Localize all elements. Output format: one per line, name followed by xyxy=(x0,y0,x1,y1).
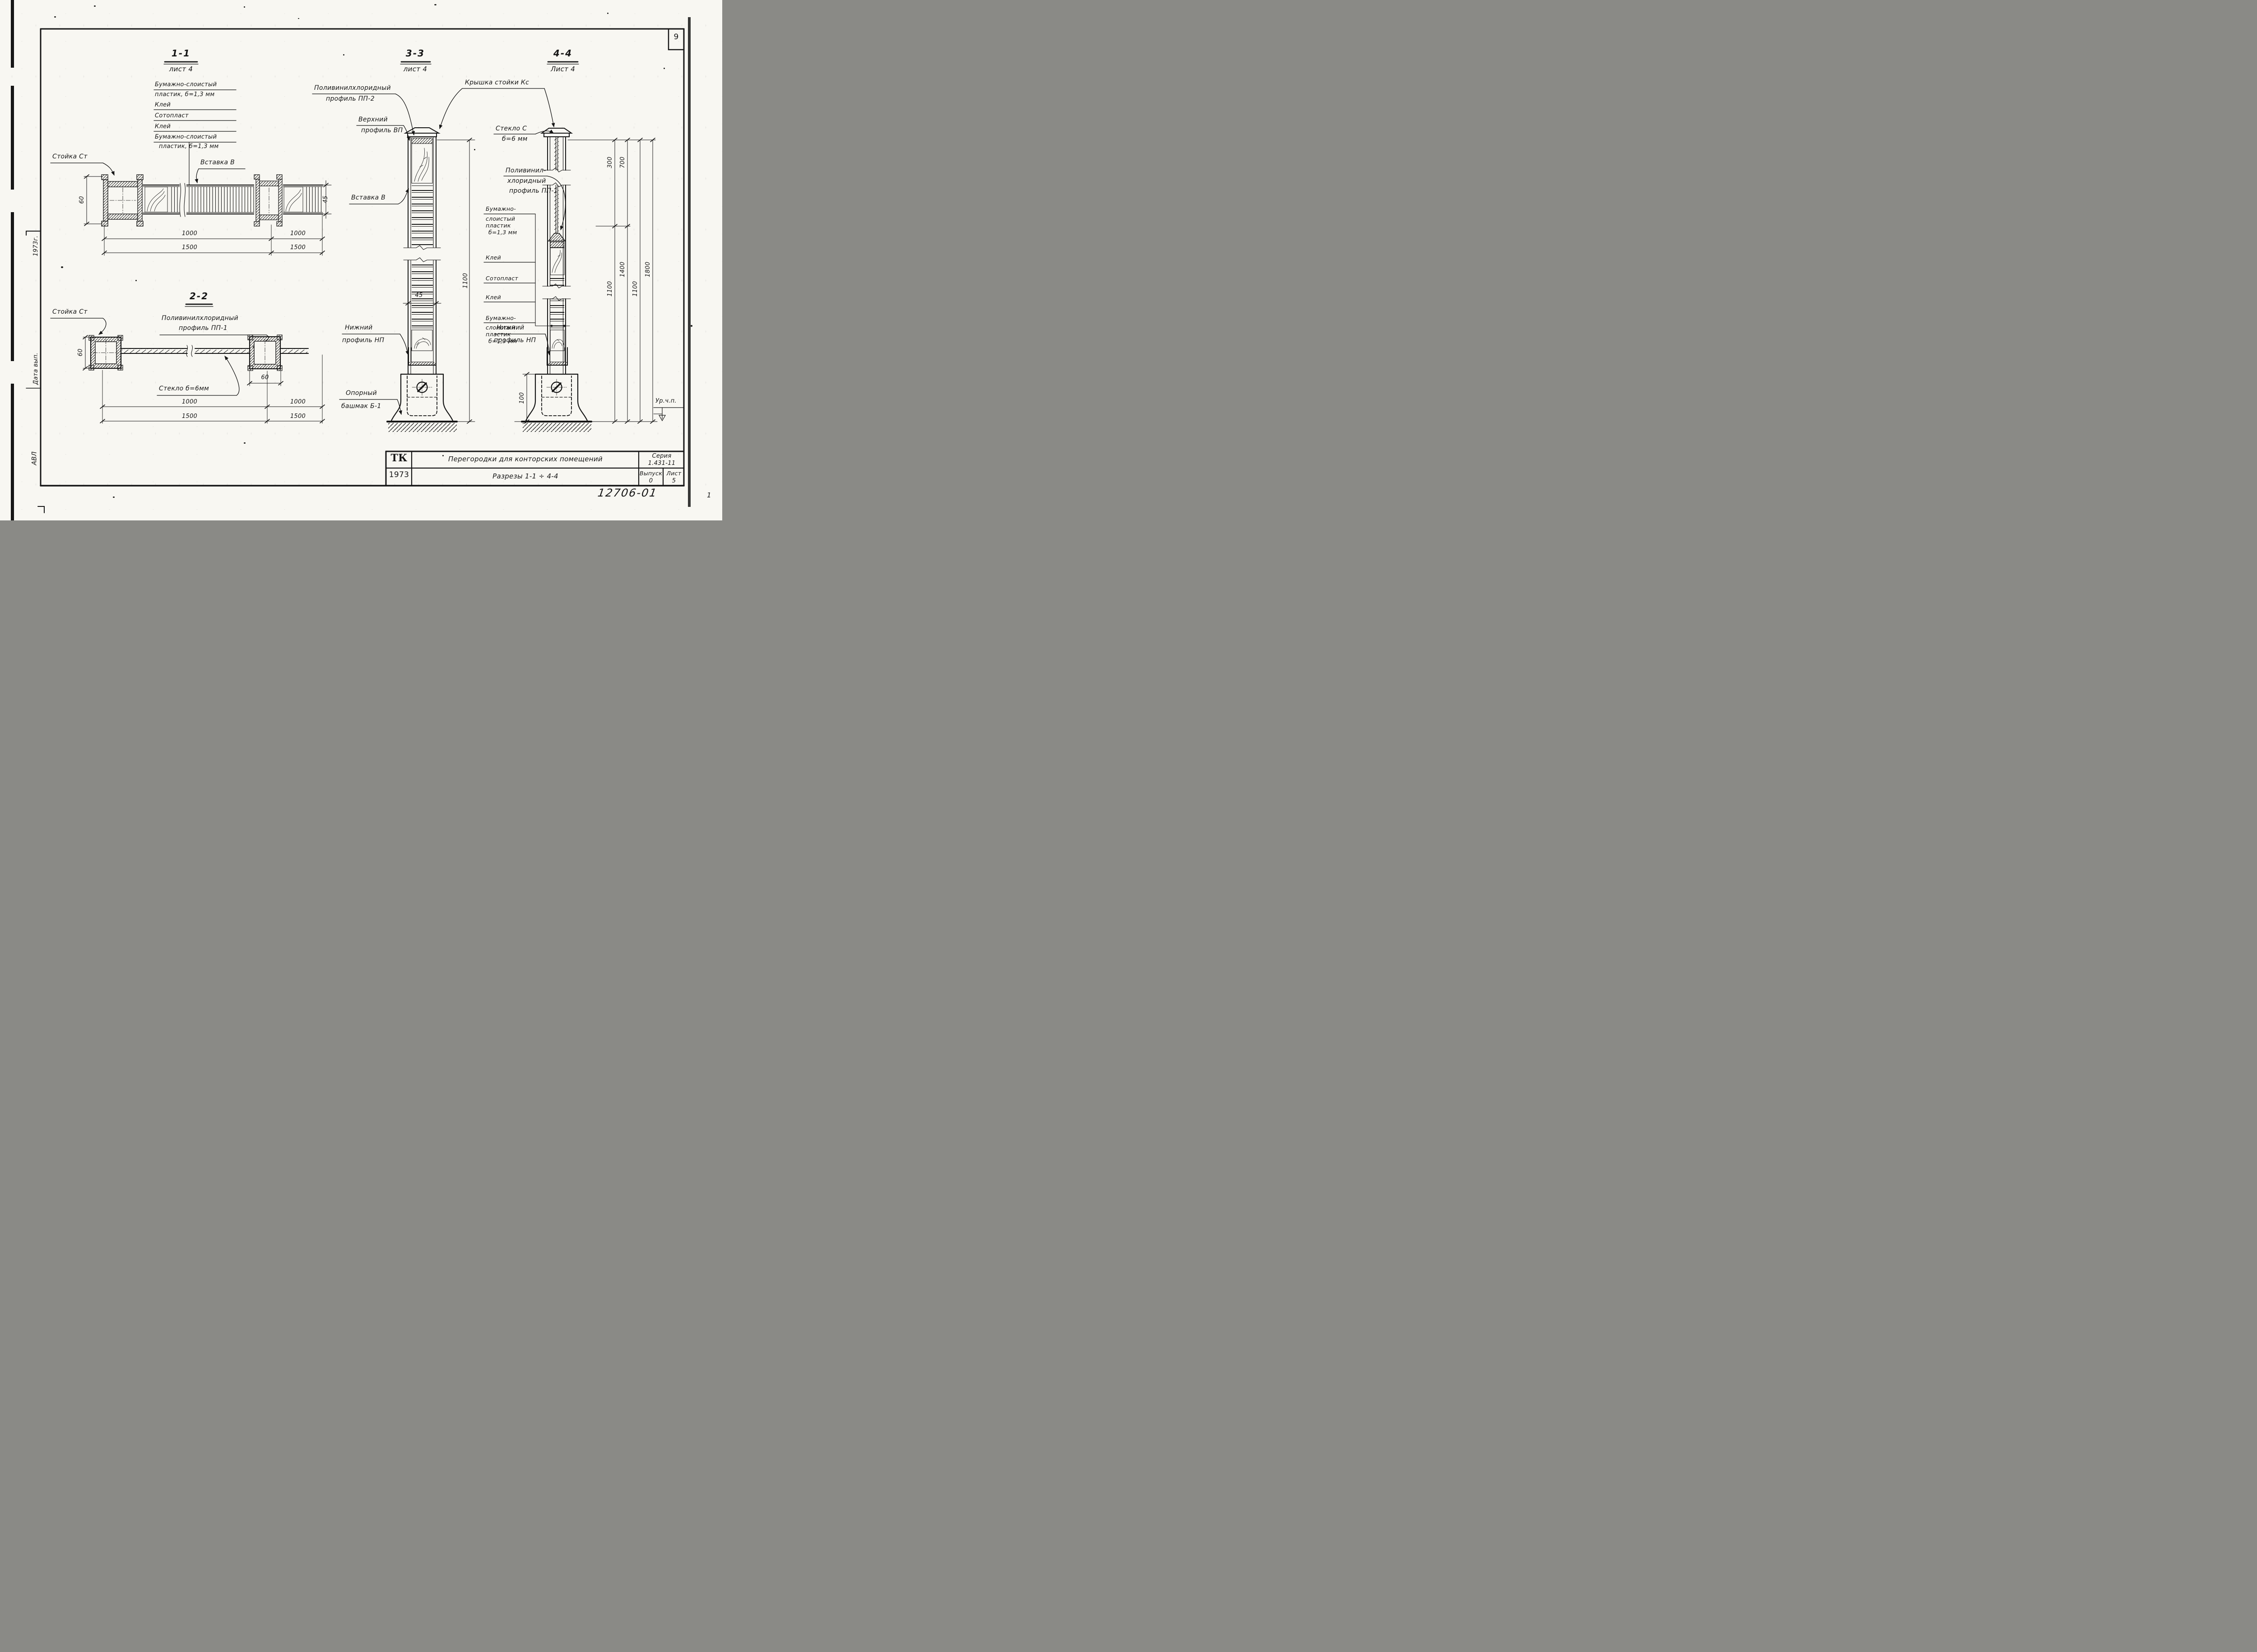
layer-label-7: пластик, б=1,3 мм xyxy=(159,144,219,150)
section-1-1-title: 1-1 xyxy=(165,49,197,58)
title-block-series-label: Серия xyxy=(640,453,683,459)
dim-45-1-1: 45 xyxy=(323,190,329,209)
title-block-year: 1973 xyxy=(386,471,412,479)
label-profile-2-2-line1: Поливинилхлоридный xyxy=(162,315,238,322)
section-4-4-title: 4-4 xyxy=(547,49,579,58)
title-block-title: Перегородки для конторских помещений xyxy=(413,456,637,463)
dim-1100-3-3: 1100 xyxy=(463,271,469,291)
dim-span1-1-1: 1000 xyxy=(172,231,208,237)
label-bottom-profile-3-3-line2: профиль НП xyxy=(342,337,384,344)
label-post-1-1: Стойка Ст xyxy=(52,153,88,160)
section-3-3-sheet-ref: лист 4 xyxy=(399,66,432,73)
label-pvc-pp2-line2: профиль ПП-2 xyxy=(326,96,375,102)
title-block-logo: ТК xyxy=(386,453,412,464)
label-glass-4-4-line2: б=6 мм xyxy=(502,136,528,143)
layer-label-3: Клей xyxy=(155,102,171,108)
dim-module2-1-1: 1500 xyxy=(284,245,311,251)
section-3-3-linework xyxy=(312,62,554,432)
layer-4-4-6: Сотопласт xyxy=(486,275,518,281)
label-shoe-line1: Опорный xyxy=(346,390,377,397)
layer-4-4-7: Клей xyxy=(486,294,501,300)
layer-4-4-8: Бумажно- xyxy=(486,315,516,321)
layer-4-4-5: Клей xyxy=(486,255,501,260)
label-glass-4-4-line1: Стекло С xyxy=(496,125,527,132)
title-block-issue: 0 xyxy=(639,478,663,484)
dim-1800: 1800 xyxy=(645,260,651,279)
layer-4-4-4: б=1,3 мм xyxy=(488,229,517,235)
dim-700: 700 xyxy=(620,153,626,172)
sheet-frame xyxy=(11,0,691,520)
margin-initials: АВЛ xyxy=(32,447,38,469)
section-4-4-linework xyxy=(484,62,684,432)
layer-4-4-3: пластик xyxy=(486,223,511,228)
title-block-sheet-label: Лист xyxy=(664,470,684,476)
label-profile-2-2-line2: профиль ПП-1 xyxy=(179,325,228,332)
label-glass-2-2: Стекло б=6мм xyxy=(159,385,209,392)
label-pvc-pp2-line1: Поливинилхлоридный xyxy=(314,85,391,92)
section-3-3-title: 3-3 xyxy=(399,49,432,58)
section-1-1-sheet-ref: лист 4 xyxy=(165,66,197,73)
section-2-2-linework xyxy=(51,304,325,423)
label-insert-1-1: Вставка В xyxy=(200,159,235,166)
title-block-sheet: 5 xyxy=(664,478,684,484)
dim-300: 300 xyxy=(607,153,613,172)
drawing-sheet: 9 1973г. Дата вып. АВЛ 1 1-1 лист 4 Бума… xyxy=(0,0,722,520)
label-insert-3-3: Вставка В xyxy=(351,195,385,201)
layer-label-4: Сотопласт xyxy=(155,113,189,119)
section-4-4-sheet-ref: Лист 4 xyxy=(547,66,579,73)
document-stamp: 12706-01 xyxy=(586,487,669,499)
dim-1100a: 1100 xyxy=(607,279,613,299)
dim-60-left-2-2: 60 xyxy=(78,343,84,362)
label-bottom-profile-4-4-line1: Нижний xyxy=(497,325,524,331)
dim-module2-2-2: 1500 xyxy=(284,413,311,420)
layer-4-4-1: Бумажно- xyxy=(486,206,516,212)
layer-label-1: Бумажно-слоистый xyxy=(155,82,217,88)
layer-label-2: пластик, б=1,3 мм xyxy=(155,92,215,98)
dim-45-3-3: 45 xyxy=(409,292,429,299)
label-top-profile-line2: профиль ВП xyxy=(361,127,403,134)
dim-60-post-2-2: 60 xyxy=(254,375,276,381)
margin-corner-mark: 1 xyxy=(707,492,711,499)
dim-1100b: 1100 xyxy=(632,279,639,299)
level-mark-label: Ур.ч.п. xyxy=(655,398,677,404)
dim-module1-1-1: 1500 xyxy=(172,245,208,251)
label-pvc-pp1-line1: Поливинил- xyxy=(506,167,546,174)
dim-span2-1-1: 1000 xyxy=(284,231,311,237)
drawing-linework xyxy=(0,0,722,520)
label-pvc-pp1-line2: хлоридный xyxy=(507,178,546,185)
margin-date-label: Дата вып. xyxy=(33,348,39,389)
label-bottom-profile-4-4-line2: профиль НП xyxy=(494,337,536,344)
label-post-2-2: Стойка Ст xyxy=(52,309,88,316)
label-top-profile-line1: Верхний xyxy=(358,116,388,123)
dim-span1-2-2: 1000 xyxy=(172,399,208,405)
dim-1400: 1400 xyxy=(620,260,626,279)
section-2-2-title: 2-2 xyxy=(185,292,213,301)
dim-module1-2-2: 1500 xyxy=(172,413,208,420)
title-block-subtitle: Разрезы 1-1 ÷ 4-4 xyxy=(413,473,637,480)
label-bottom-profile-3-3-line1: Нижний xyxy=(345,325,372,331)
label-pvc-pp1-line3: профиль ПП-1 xyxy=(509,188,558,195)
title-block-series: 1.431-11 xyxy=(640,460,683,467)
dim-span2-2-2: 1000 xyxy=(284,399,311,405)
page-number: 9 xyxy=(669,33,684,42)
margin-year: 1973г. xyxy=(33,232,39,260)
title-block-issue-label: Выпуск xyxy=(639,470,663,476)
layer-4-4-2: слоистый xyxy=(486,216,515,222)
layer-label-6: Бумажно-слоистый xyxy=(155,134,217,140)
dim-60-1-1: 60 xyxy=(79,191,85,209)
dim-100: 100 xyxy=(519,388,525,408)
label-shoe-line2: башмак Б-1 xyxy=(341,403,381,410)
layer-label-5: Клей xyxy=(155,124,171,130)
label-cap: Крышка стойки Кс xyxy=(465,79,529,86)
